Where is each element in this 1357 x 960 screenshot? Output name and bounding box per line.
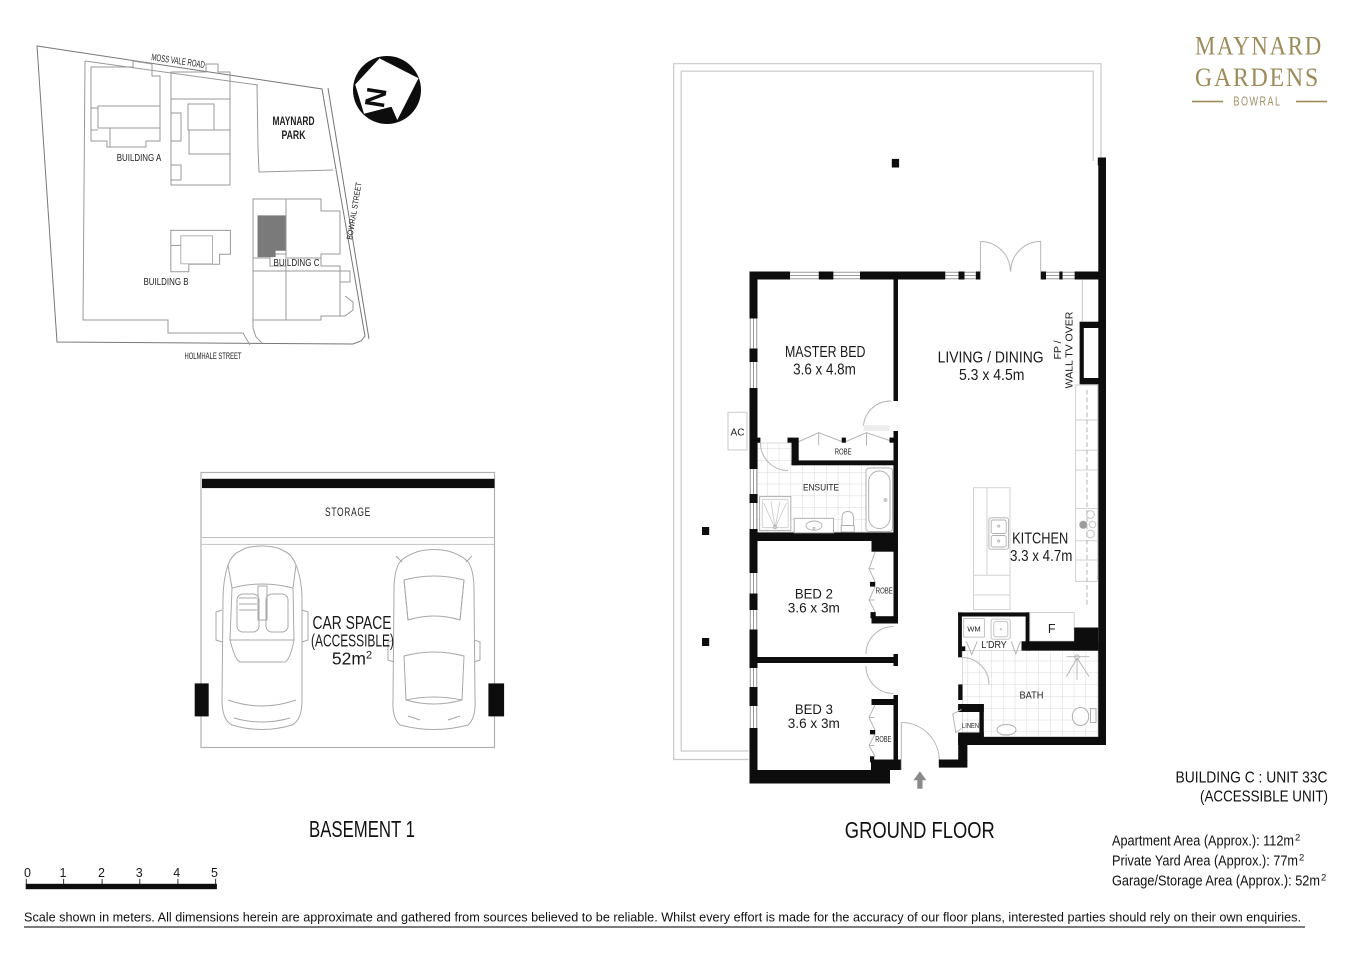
svg-text:STORAGE: STORAGE — [325, 505, 371, 519]
svg-text:PARK: PARK — [282, 130, 307, 142]
svg-text:Apartment Area (Approx.): 112m: Apartment Area (Approx.): 112m — [1112, 834, 1294, 850]
svg-text:2: 2 — [98, 866, 105, 880]
svg-text:0: 0 — [24, 866, 31, 880]
svg-text:Garage/Storage Area (Approx.):: Garage/Storage Area (Approx.): 52m — [1112, 874, 1320, 890]
svg-text:2: 2 — [1321, 873, 1326, 884]
svg-text:3.6 x 4.8m: 3.6 x 4.8m — [793, 362, 856, 379]
svg-text:BOWRAL: BOWRAL — [1234, 95, 1282, 109]
svg-text:Scale shown in meters. All dim: Scale shown in meters. All dimensions he… — [24, 910, 1301, 925]
svg-text:HOLMHALE STREET: HOLMHALE STREET — [185, 351, 242, 362]
svg-text:2: 2 — [1299, 853, 1304, 864]
svg-text:AC: AC — [731, 428, 745, 439]
svg-text:MAYNARD: MAYNARD — [273, 116, 315, 128]
svg-text:5.3 x 4.5m: 5.3 x 4.5m — [959, 367, 1025, 384]
svg-text:3.6 x 3m: 3.6 x 3m — [788, 600, 840, 616]
svg-text:L'DRY: L'DRY — [981, 640, 1007, 651]
svg-text:WALL TV OVER: WALL TV OVER — [1064, 311, 1076, 388]
svg-text:ROBE: ROBE — [875, 735, 891, 744]
svg-text:WM: WM — [967, 625, 981, 634]
svg-text:BUILDING C: BUILDING C — [274, 258, 320, 269]
svg-text:(ACCESSIBLE): (ACCESSIBLE) — [311, 631, 394, 651]
svg-text:5: 5 — [211, 866, 218, 880]
svg-text:(ACCESSIBLE UNIT): (ACCESSIBLE UNIT) — [1200, 789, 1328, 806]
svg-text:1: 1 — [60, 866, 67, 880]
svg-text:3.3 x 4.7m: 3.3 x 4.7m — [1010, 548, 1073, 565]
svg-text:ROBE: ROBE — [835, 447, 852, 457]
svg-text:BATH: BATH — [1020, 690, 1044, 702]
svg-text:ENSUITE: ENSUITE — [803, 483, 839, 494]
svg-text:BUILDING C : UNIT 33C: BUILDING C : UNIT 33C — [1176, 770, 1328, 787]
svg-text:MASTER BED: MASTER BED — [785, 344, 866, 361]
svg-text:LINEN: LINEN — [962, 721, 979, 730]
svg-text:F: F — [1048, 622, 1056, 636]
svg-text:BUILDING A: BUILDING A — [117, 153, 162, 164]
svg-text:GARDENS: GARDENS — [1195, 63, 1320, 92]
svg-text:BUILDING B: BUILDING B — [144, 277, 189, 288]
svg-text:2: 2 — [1295, 833, 1300, 844]
svg-text:FP /: FP / — [1052, 340, 1064, 359]
svg-text:3.6 x 3m: 3.6 x 3m — [788, 715, 840, 731]
svg-text:GROUND FLOOR: GROUND FLOOR — [845, 817, 995, 843]
svg-text:MAYNARD: MAYNARD — [1195, 32, 1323, 61]
svg-text:3: 3 — [136, 866, 143, 880]
svg-text:BASEMENT 1: BASEMENT 1 — [309, 816, 415, 842]
svg-text:ROBE: ROBE — [876, 586, 893, 595]
svg-text:KITCHEN: KITCHEN — [1012, 531, 1068, 548]
svg-text:LIVING / DINING: LIVING / DINING — [938, 350, 1044, 367]
svg-text:Private Yard Area (Approx.): 7: Private Yard Area (Approx.): 77m — [1112, 854, 1298, 870]
svg-text:4: 4 — [173, 866, 180, 880]
